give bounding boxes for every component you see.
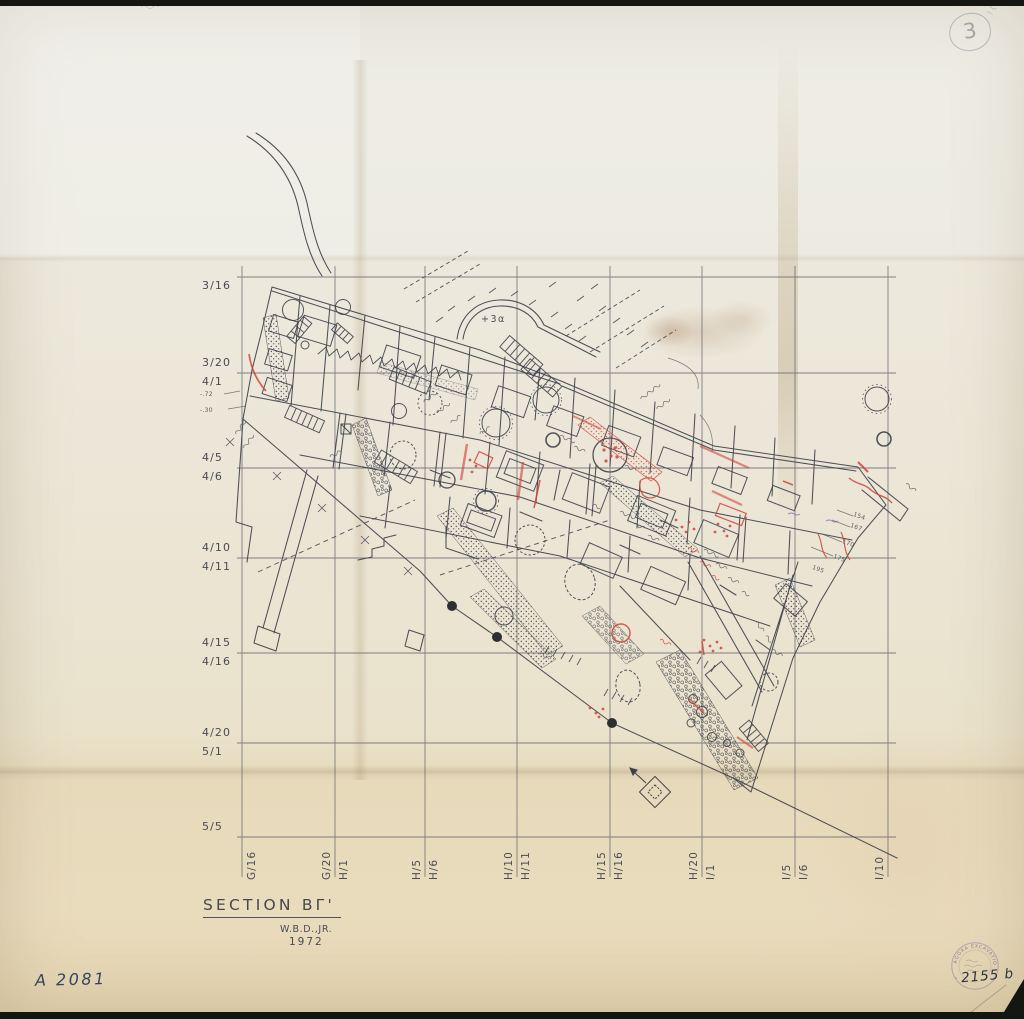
plan-ink-lines — [236, 133, 1006, 1016]
red-annotations — [249, 354, 892, 748]
north-arrow-rosette — [630, 768, 671, 808]
grid-col-label: I/10 — [874, 856, 887, 880]
section-title: SECTION BΓ' — [203, 896, 341, 918]
pit-and-well-circles — [283, 300, 892, 758]
grid-col-label: H/10 — [503, 851, 516, 880]
blue-pen-marks — [788, 513, 838, 522]
drawing-year: 1972 — [289, 936, 324, 948]
grid-col-label: H/11 — [520, 851, 533, 880]
grid-row-label: 3/16 — [202, 280, 231, 292]
scan-edge-top — [0, 0, 1024, 6]
grid-col-label: H/5 — [411, 859, 424, 880]
spot-elevation-label: -.72 — [200, 391, 213, 398]
grid-col-label: H/20 — [688, 851, 701, 880]
draughtsman-initials: W.B.D.,JR. — [280, 924, 332, 935]
grid-col-label: G/16 — [246, 851, 259, 880]
grid-col-label: I/5 — [781, 864, 794, 880]
grid-col-label: I/6 — [798, 864, 811, 880]
grid-col-label: G/20 — [321, 851, 334, 880]
elevation-note: +3α — [481, 314, 506, 325]
scan-edge-bottom — [0, 1012, 1024, 1019]
grid-row-label: 4/6 — [202, 471, 223, 483]
scanned-drawing-sheet: AGORA EXCAVATIONS 3/16 3/20 4/1 4/5 4/6 … — [0, 0, 1024, 1019]
grid-row-label: 5/5 — [202, 821, 223, 833]
grid-row-label: 4/10 — [202, 542, 231, 554]
agora-stamp: AGORA EXCAVATIONS — [0, 0, 998, 989]
stamp-rim-text: AGORA EXCAVATIONS — [0, 0, 998, 966]
svg-text:AGORA EXCAVATIONS: AGORA EXCAVATIONS — [0, 0, 998, 966]
dashed-lines — [226, 251, 715, 705]
grid-col-label: H/16 — [613, 851, 626, 880]
grid-col-label: H/15 — [596, 851, 609, 880]
grid-row-label: 4/11 — [202, 561, 231, 573]
inventory-number-handwritten: A 2081 — [35, 969, 107, 990]
grid-row-label: 5/1 — [202, 746, 223, 758]
grid-row-label: 4/1 — [202, 376, 223, 388]
grid-row-label: 4/20 — [202, 727, 231, 739]
spot-elevation-label: -.30 — [200, 407, 213, 414]
grid-row-label: 3/20 — [202, 357, 231, 369]
grid-row-label: 4/16 — [202, 656, 231, 668]
grid-col-label: I/1 — [705, 864, 718, 880]
grid-row-label: 4/5 — [202, 452, 223, 464]
grid-col-label: H/1 — [338, 859, 351, 880]
grid-col-label: H/6 — [428, 859, 441, 880]
grid-row-label: 4/15 — [202, 637, 231, 649]
